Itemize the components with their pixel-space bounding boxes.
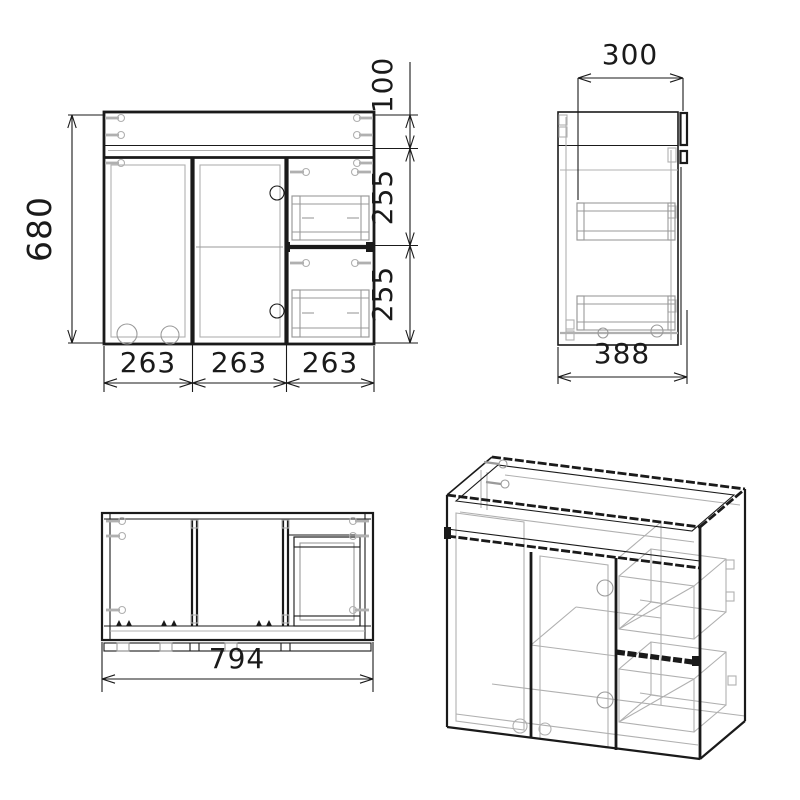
dim-label-drawer-section: 263	[302, 346, 358, 379]
dim-label-depth: 388	[594, 337, 650, 370]
front-fittings	[105, 115, 373, 267]
front-drawer-boxes	[292, 196, 369, 337]
plan-fittings	[106, 518, 369, 624]
dim-label-lower-drawer: 255	[366, 266, 399, 322]
dim-label-height: 680	[20, 196, 59, 262]
dim-label-top-band: 100	[366, 57, 399, 113]
dim-label-width: 794	[209, 642, 265, 675]
drawing-canvas: 680 100 255 255	[0, 0, 800, 800]
dim-label-upper-drawer: 255	[366, 169, 399, 225]
plan-carcass	[102, 513, 373, 651]
front-view: 680 100 255 255	[20, 57, 418, 392]
iso-hidden-lines	[456, 470, 745, 748]
dim-overall-width: 794	[102, 642, 373, 692]
dim-label-left-door: 263	[120, 346, 176, 379]
side-view: 300 388	[558, 38, 687, 384]
hinge-circle	[270, 186, 284, 200]
iso-structure	[444, 457, 745, 759]
dim-top-inset: 300	[578, 38, 683, 200]
front-dimensions: 680 100 255 255	[20, 57, 418, 392]
isometric-view	[444, 457, 745, 759]
dim-overall-height: 680	[20, 115, 104, 343]
dim-label-middle-door: 263	[211, 346, 267, 379]
technical-drawing-sheet: 680 100 255 255	[0, 0, 800, 800]
front-carcass	[104, 112, 374, 344]
side-hidden-detail	[559, 115, 678, 340]
dim-label-top-inset: 300	[602, 38, 658, 71]
plan-view: 794	[102, 513, 373, 692]
dim-widths: 263 263 263	[104, 344, 374, 392]
hinge-circle	[270, 304, 284, 318]
plan-dimensions: 794	[102, 642, 373, 692]
